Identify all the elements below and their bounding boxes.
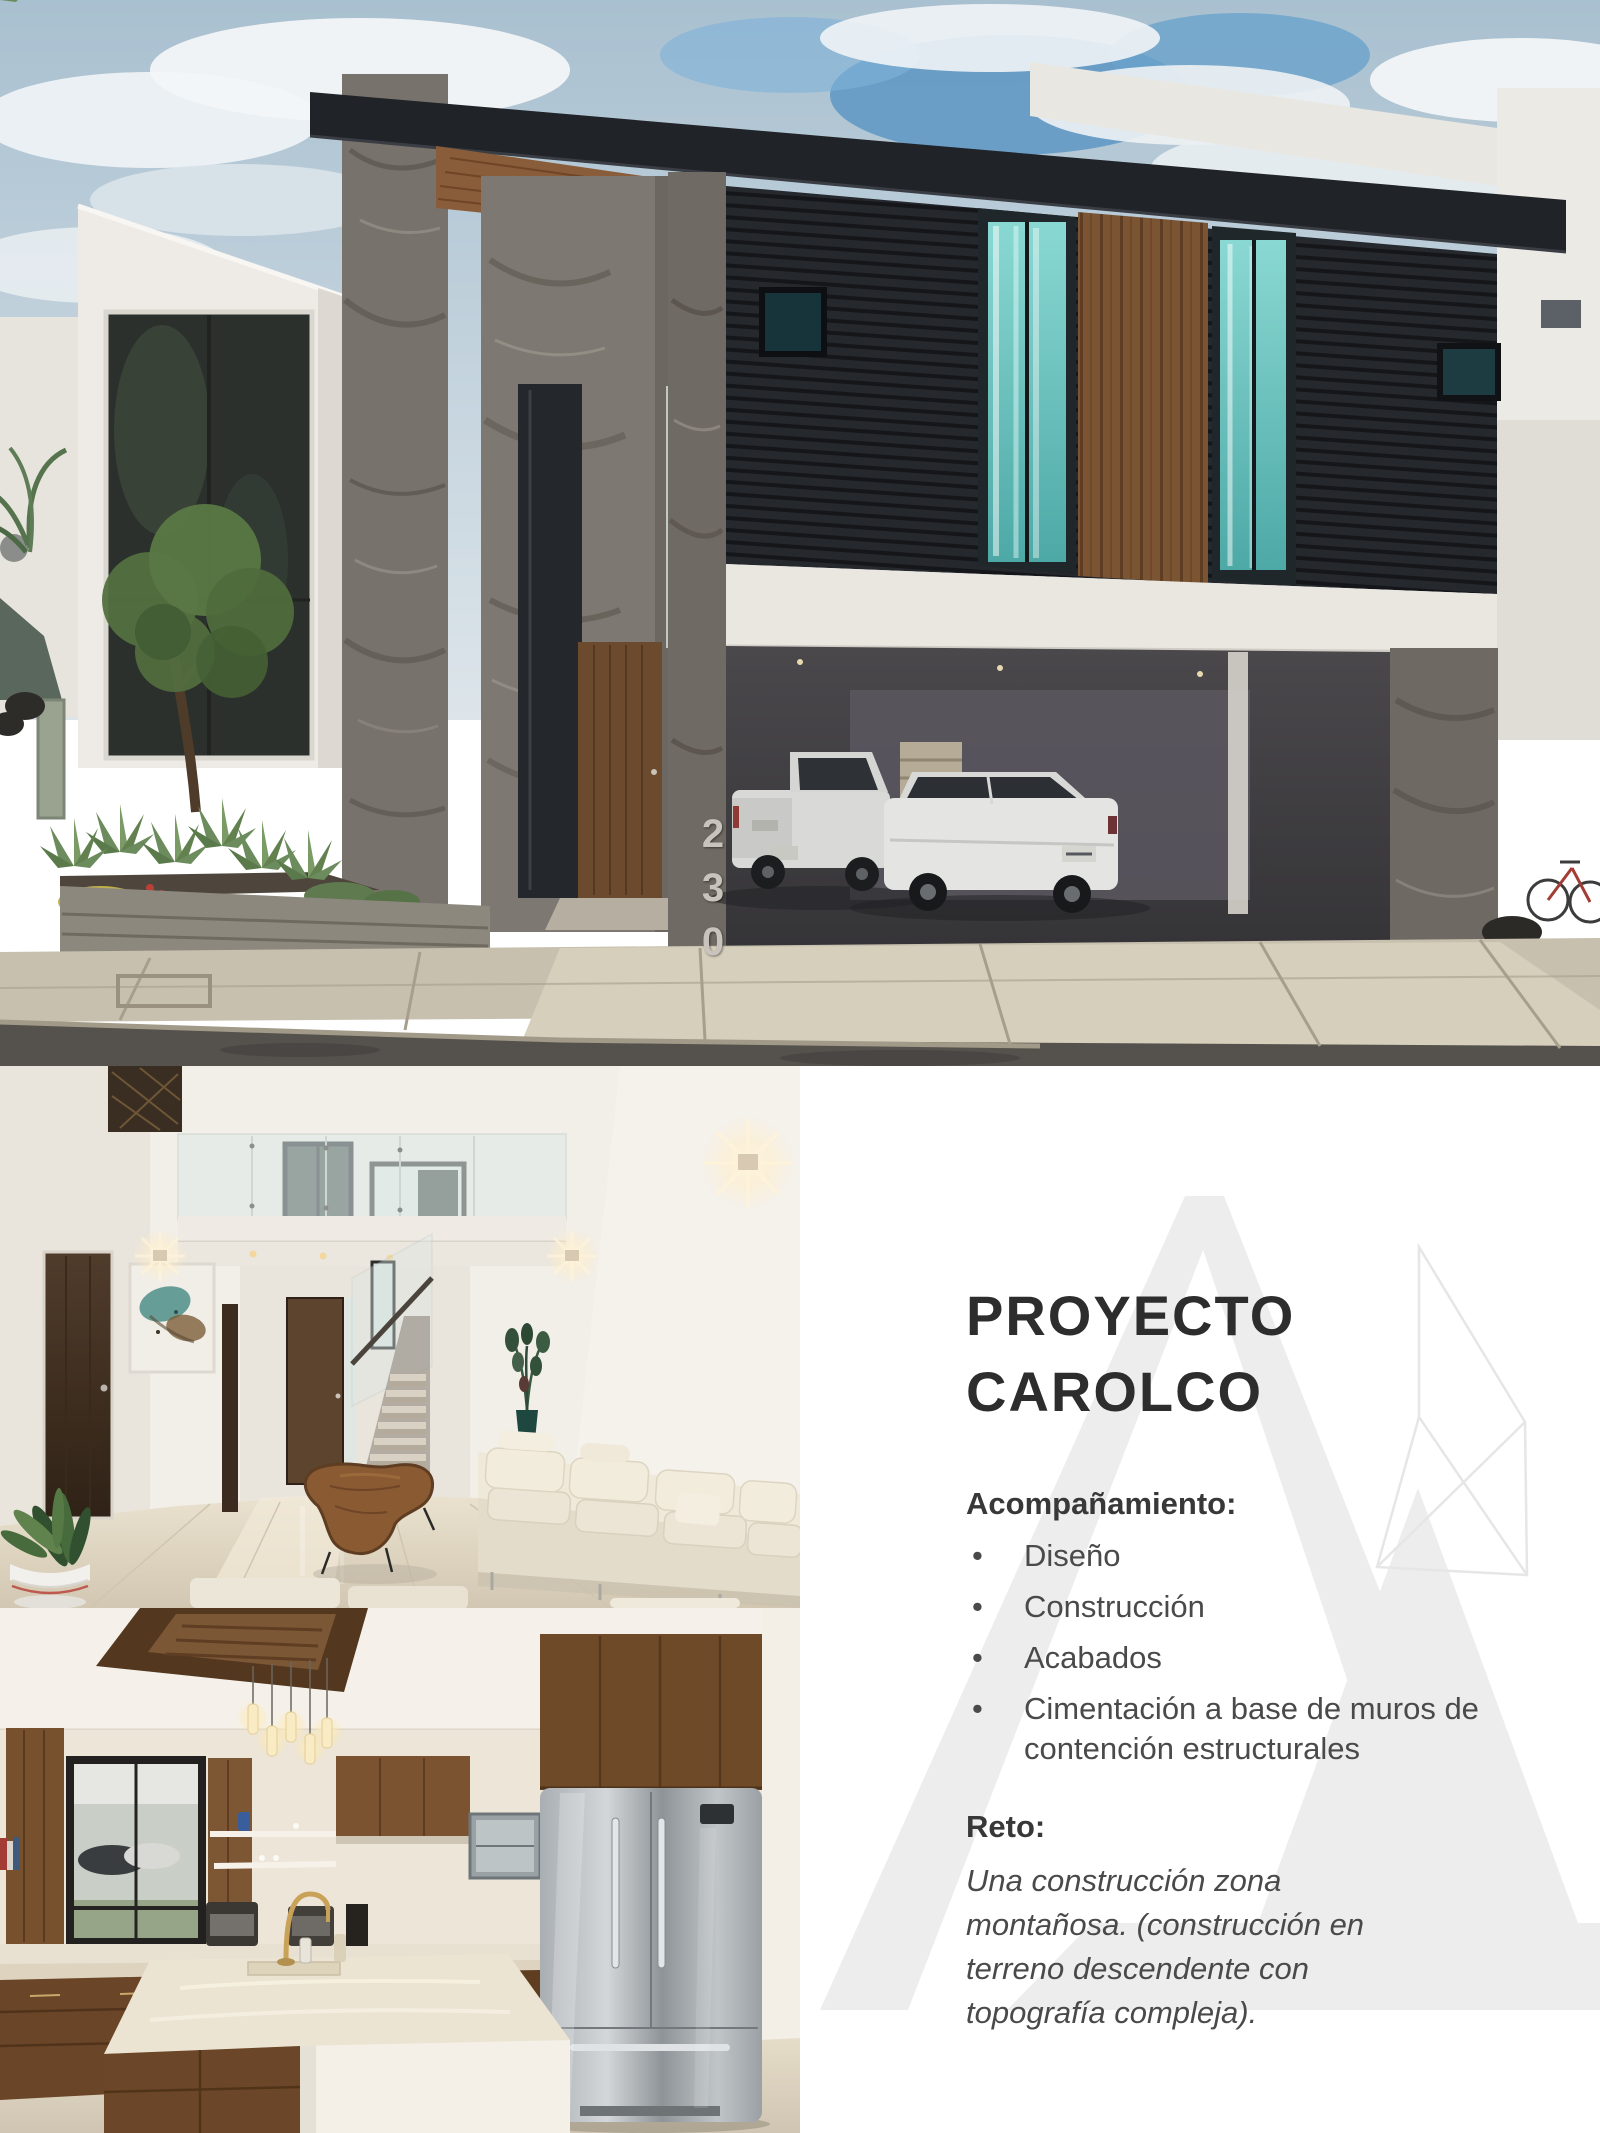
living-room-illustration [0,1066,800,1608]
accompaniment-item: Diseño [966,1536,1524,1576]
left-door [44,1252,112,1518]
right-stone-column [1390,648,1498,966]
upper-volume [726,186,1498,652]
window [66,1756,206,1946]
brochure-page: 230 [0,0,1600,2133]
house-number: 230 [690,812,735,974]
info-panel: PROYECTO CAROLCO Acompañamiento: Diseño … [800,1066,1600,2133]
facade-photo: 230 [0,0,1600,1066]
living-room-photo [0,1066,800,1608]
project-title-line2: CAROLCO [966,1360,1263,1423]
project-title-line1: PROYECTO [966,1284,1295,1347]
stone-slab-pillar [342,74,448,936]
bicycles [1482,862,1600,948]
facade-illustration [0,0,1600,1066]
kitchen-illustration [0,1608,800,2133]
open-door-edge [222,1304,238,1512]
kitchen-photo [0,1608,800,2133]
accompaniment-item: Acabados [966,1638,1524,1678]
accompaniment-item: Cimentación a base de muros de contenció… [966,1689,1524,1769]
accompaniment-item: Construcción [966,1587,1524,1627]
island [104,1938,570,2133]
street-ground [0,938,1600,1066]
wall-artwork [130,1264,214,1372]
panel-content: PROYECTO CAROLCO Acompañamiento: Diseño … [800,1066,1600,2035]
project-title: PROYECTO CAROLCO [966,1278,1560,1430]
bookshelf [0,1837,20,1870]
accompaniment-heading: Acompañamiento: [966,1486,1560,1522]
challenge-heading: Reto: [966,1809,1560,1845]
accompaniment-list: Diseño Construcción Acabados Cimentación… [966,1536,1560,1769]
challenge-text: Una construcción zona montañosa. (constr… [966,1859,1436,2035]
center-stone-volume [481,176,700,932]
